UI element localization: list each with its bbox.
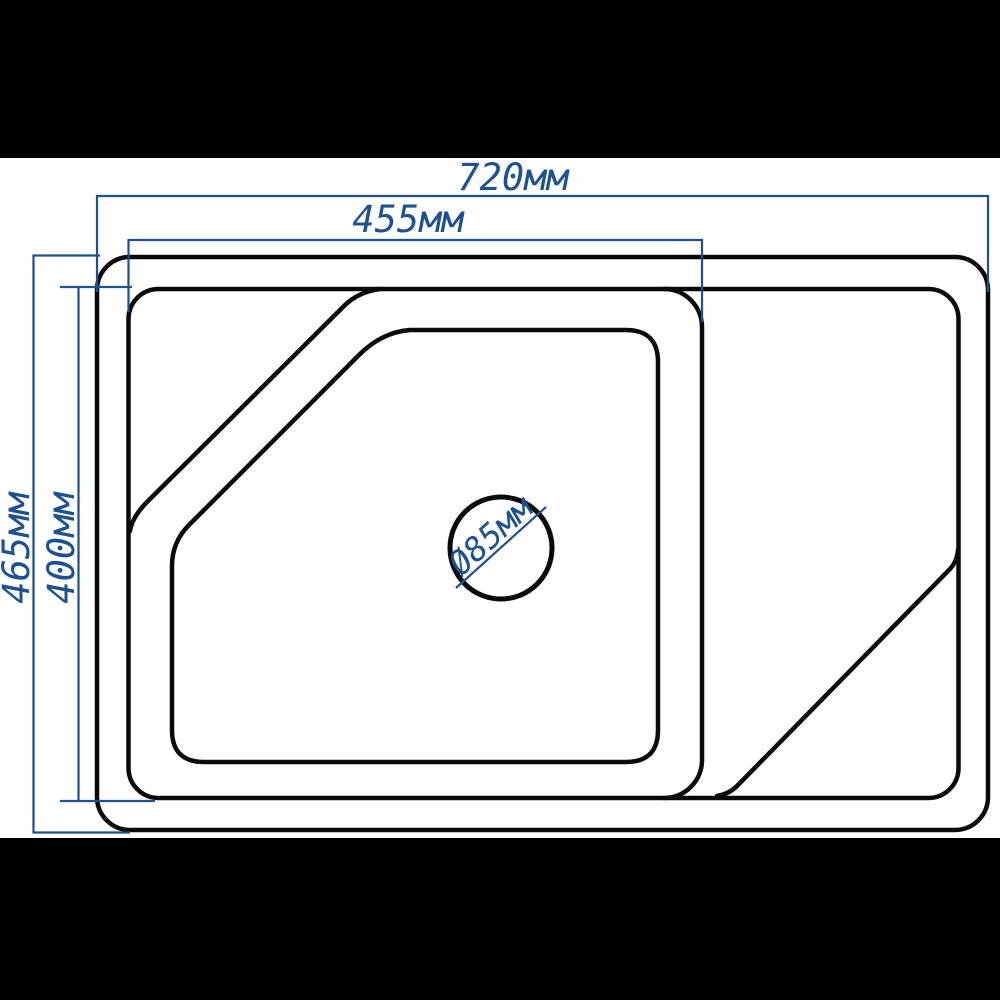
sink-drawing-page: 720мм 455мм 465мм 400мм Ø85мм [0,0,1000,1000]
letterbox-bottom-bar [0,838,1000,1000]
dimension-line-overall-width [97,196,988,292]
drainboard-diagonal-line [717,550,958,796]
letterbox-top-bar [0,0,1000,158]
sink-rim-inner-edge [129,289,959,798]
label-drain-diameter: Ø85мм [440,487,541,583]
label-overall-width: 720мм [457,156,570,199]
dimension-line-bowl-width [129,240,703,322]
label-overall-depth: 465мм [0,491,38,604]
label-bowl-depth: 400мм [40,491,83,604]
label-bowl-width: 455мм [352,198,465,241]
bowl-drainboard-divider-line [664,289,702,798]
sink-outline-group [97,257,988,830]
dimension-labels-group: 720мм 455мм 465мм 400мм Ø85мм [0,156,570,604]
rim-top-left-chamfer-line [130,289,380,531]
bowl-floor-outline [172,330,658,762]
sink-outer-edge [97,257,988,830]
